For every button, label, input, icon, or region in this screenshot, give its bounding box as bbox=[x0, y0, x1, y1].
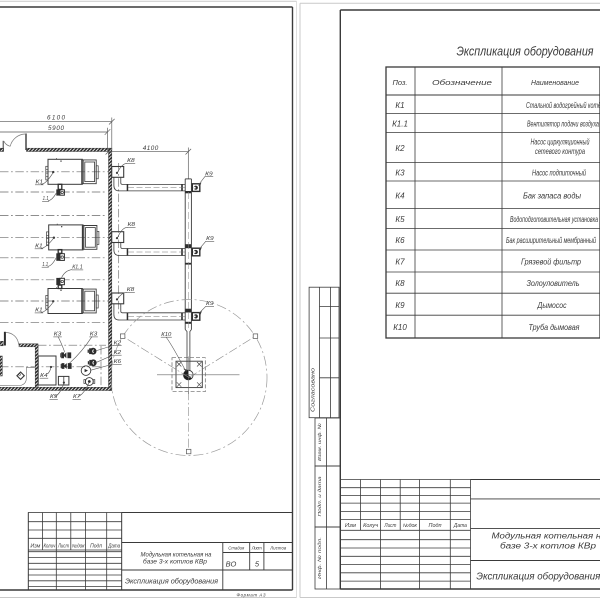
svg-text:К4: К4 bbox=[40, 373, 48, 379]
svg-text:Подп. и дата: Подп. и дата bbox=[317, 476, 323, 516]
svg-text:1.1: 1.1 bbox=[42, 262, 48, 268]
svg-text:Подп: Подп bbox=[90, 544, 102, 550]
svg-text:4100: 4100 bbox=[143, 145, 159, 152]
svg-text:Инф. № подл.: Инф. № подл. bbox=[317, 537, 323, 579]
svg-text:К2: К2 bbox=[395, 144, 405, 153]
svg-text:Грязевой фильтр: Грязевой фильтр bbox=[521, 258, 581, 267]
svg-text:К8: К8 bbox=[395, 279, 405, 288]
svg-text:Дата: Дата bbox=[107, 544, 120, 550]
svg-text:Стадия: Стадия bbox=[228, 546, 245, 551]
svg-text:К4: К4 bbox=[395, 191, 405, 200]
svg-text:Экспликация оборудования: Экспликация оборудования bbox=[125, 577, 218, 586]
svg-text:Экспликация оборудования: Экспликация оборудования bbox=[476, 571, 600, 583]
svg-text:Подп: Подп bbox=[429, 523, 442, 529]
svg-text:Листов: Листов bbox=[269, 546, 287, 551]
svg-text:Поз.: Поз. bbox=[393, 78, 408, 87]
svg-text:5900: 5900 bbox=[48, 125, 64, 132]
svg-text:Колуч: Колуч bbox=[363, 523, 378, 529]
svg-text:Обозначение: Обозначение bbox=[432, 78, 492, 87]
svg-text:Колич: Колич bbox=[44, 544, 56, 550]
svg-text:Лист: Лист bbox=[251, 546, 263, 551]
svg-text:Насос циркуляционный: Насос циркуляционный bbox=[531, 137, 590, 146]
svg-text:К1.1: К1.1 bbox=[392, 120, 408, 129]
svg-text:Стальной водогрейный котёл: Стальной водогрейный котёл bbox=[526, 101, 600, 110]
svg-text:К6: К6 bbox=[395, 236, 405, 245]
svg-text:Золоуловитель: Золоуловитель bbox=[527, 279, 580, 288]
svg-text:К1: К1 bbox=[395, 101, 404, 110]
svg-text:К10: К10 bbox=[393, 323, 407, 332]
svg-text:базе 3-х котлов КВр: базе 3-х котлов КВр bbox=[143, 560, 208, 566]
svg-text:К3: К3 bbox=[395, 168, 405, 177]
svg-text:№док: №док bbox=[403, 523, 418, 529]
svg-text:Формат А3: Формат А3 bbox=[237, 593, 266, 598]
svg-text:6100: 6100 bbox=[47, 115, 65, 122]
svg-text:К2: К2 bbox=[114, 350, 122, 356]
svg-text:Наименование: Наименование bbox=[531, 78, 579, 87]
svg-text:Взам. инф. №: Взам. инф. № bbox=[317, 423, 323, 461]
svg-text:К9: К9 bbox=[395, 301, 405, 310]
svg-text:Лист: Лист bbox=[383, 523, 396, 529]
svg-text:К7: К7 bbox=[395, 258, 405, 267]
svg-text:Дымосос: Дымосос bbox=[537, 301, 567, 310]
svg-text:К5: К5 bbox=[395, 215, 405, 224]
svg-text:Водоподготовительная установка: Водоподготовительная установка bbox=[510, 215, 598, 224]
svg-text:Дата: Дата bbox=[453, 523, 467, 529]
svg-text:Изм: Изм bbox=[30, 544, 41, 550]
svg-text:базе 3-х котлов КВр: базе 3-х котлов КВр bbox=[500, 541, 596, 551]
svg-text:ВО: ВО bbox=[226, 560, 237, 569]
svg-text:Насос подпиточный: Насос подпиточный bbox=[532, 168, 586, 177]
svg-text:Изм: Изм bbox=[345, 523, 357, 529]
svg-text:Согласовано: Согласовано bbox=[311, 368, 317, 412]
svg-text:Модульная котельная на: Модульная котельная на bbox=[492, 531, 600, 541]
svg-text:№док: №док bbox=[72, 544, 85, 550]
svg-text:Бак запаса воды: Бак запаса воды bbox=[523, 191, 581, 200]
svg-text:Экспликация оборудования: Экспликация оборудования bbox=[457, 45, 594, 59]
svg-text:Лист: Лист bbox=[57, 544, 69, 550]
svg-text:сетевого контура: сетевого контура bbox=[535, 147, 585, 156]
svg-text:Бак расширительный мембранный: Бак расширительный мембранный bbox=[506, 236, 596, 245]
svg-text:Вентилятор подачи воздуха: Вентилятор подачи воздуха bbox=[527, 120, 599, 129]
svg-text:Модульная котельная на: Модульная котельная на bbox=[141, 553, 213, 559]
svg-text:Труба дымовая: Труба дымовая bbox=[529, 323, 581, 332]
svg-text:К10: К10 bbox=[161, 332, 172, 338]
svg-text:К2: К2 bbox=[114, 340, 122, 346]
